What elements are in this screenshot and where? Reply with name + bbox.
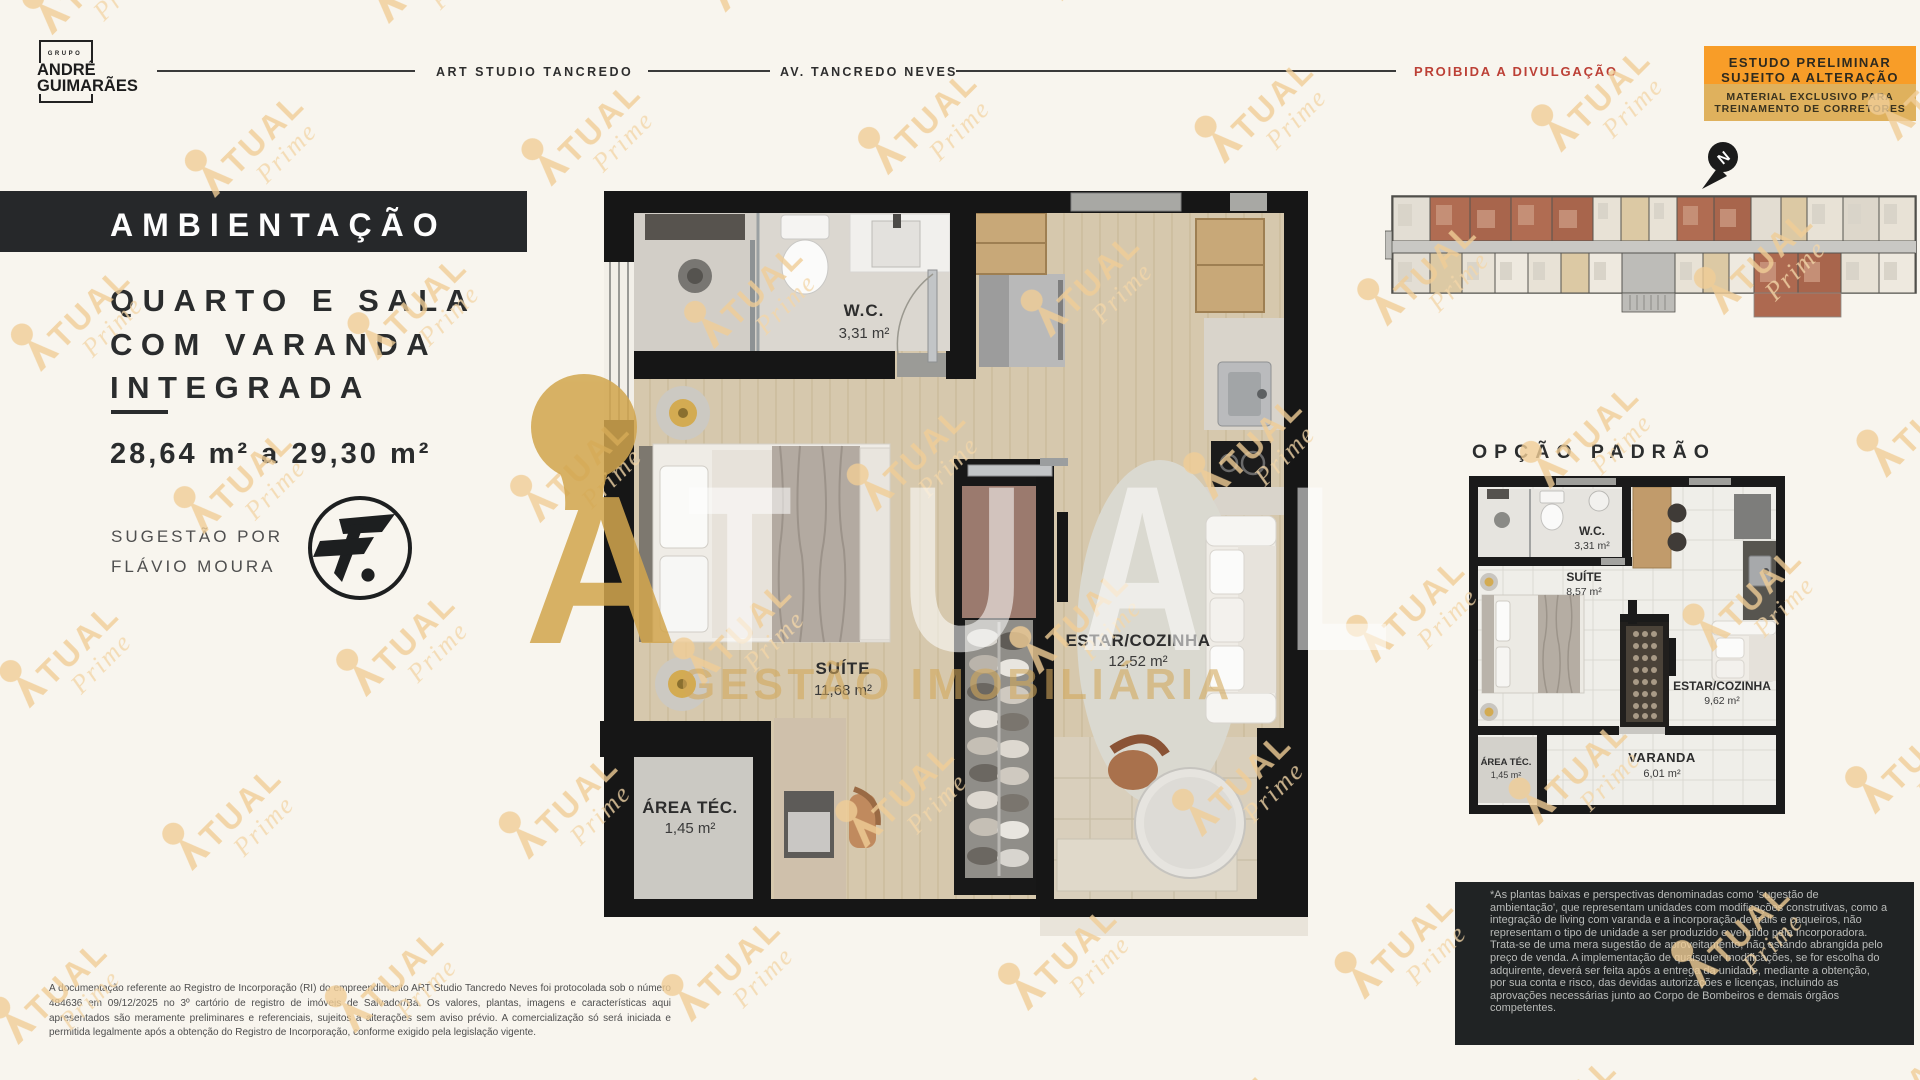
svg-text:11,68 m²: 11,68 m² [814, 682, 872, 699]
svg-text:ÁREA TÉC.: ÁREA TÉC. [642, 798, 738, 817]
svg-text:3,31 m²: 3,31 m² [839, 325, 890, 342]
svg-text:3,31 m²: 3,31 m² [1574, 540, 1610, 552]
svg-text:SUÍTE: SUÍTE [815, 659, 870, 678]
svg-text:8,57 m²: 8,57 m² [1566, 586, 1602, 598]
svg-text:9,62 m²: 9,62 m² [1704, 695, 1740, 707]
svg-text:12,52 m²: 12,52 m² [1108, 653, 1167, 670]
svg-text:1,45 m²: 1,45 m² [665, 820, 716, 837]
svg-text:W.C.: W.C. [844, 301, 885, 320]
svg-text:W.C.: W.C. [1579, 524, 1605, 538]
svg-text:ÁREA TÉC.: ÁREA TÉC. [1481, 757, 1532, 768]
svg-text:6,01 m²: 6,01 m² [1643, 768, 1681, 780]
svg-text:ESTAR/COZINHA: ESTAR/COZINHA [1673, 679, 1771, 693]
svg-text:1,45 m²: 1,45 m² [1491, 770, 1522, 780]
svg-text:VARANDA: VARANDA [1628, 750, 1696, 765]
svg-text:ESTAR/COZINHA: ESTAR/COZINHA [1065, 631, 1210, 650]
svg-text:SUÍTE: SUÍTE [1566, 569, 1601, 584]
